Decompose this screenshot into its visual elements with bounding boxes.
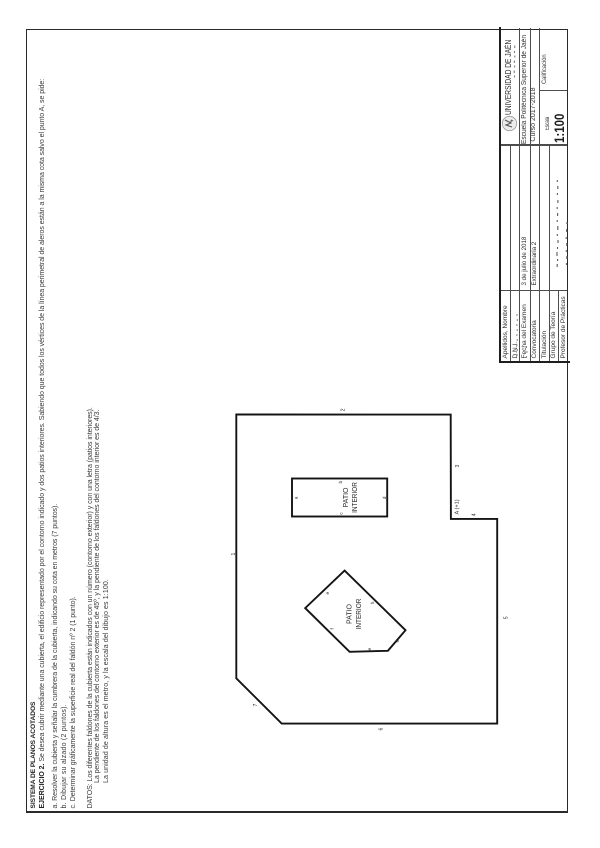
svg-text:5: 5 — [504, 616, 510, 619]
svg-text:d: d — [382, 496, 388, 499]
svg-text:a: a — [295, 496, 300, 499]
svg-text:7: 7 — [253, 704, 259, 707]
svg-text:e: e — [368, 648, 373, 651]
svg-text:INTERIOR: INTERIOR — [356, 598, 363, 629]
svg-text:h: h — [370, 601, 376, 604]
svg-text:2: 2 — [341, 408, 347, 411]
svg-text:c: c — [340, 512, 345, 515]
svg-text:A (+1): A (+1) — [455, 499, 461, 514]
svg-text:PATIO: PATIO — [347, 603, 354, 624]
svg-text:f: f — [330, 628, 336, 630]
svg-text:3: 3 — [455, 465, 461, 468]
svg-text:PATIO: PATIO — [343, 487, 350, 508]
svg-text:1: 1 — [231, 553, 237, 556]
svg-text:b: b — [338, 481, 344, 484]
svg-text:4: 4 — [472, 513, 478, 516]
svg-text:g: g — [395, 640, 400, 643]
svg-text:6: 6 — [379, 728, 385, 731]
svg-text:e: e — [326, 592, 331, 595]
svg-text:INTERIOR: INTERIOR — [352, 482, 359, 513]
